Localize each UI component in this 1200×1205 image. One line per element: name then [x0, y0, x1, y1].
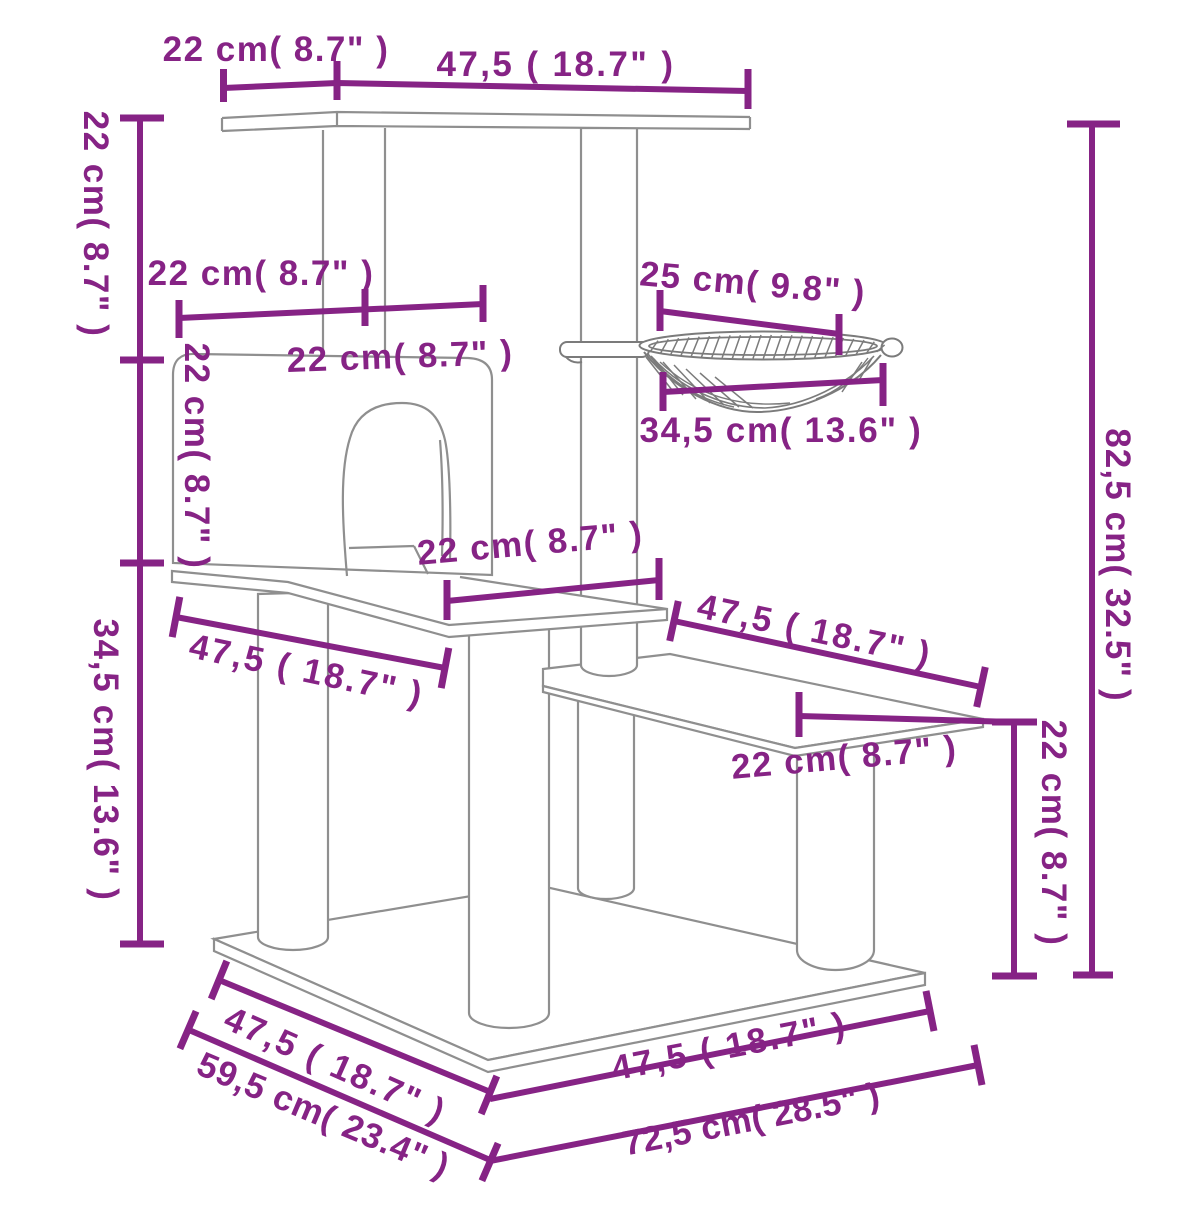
svg-text:22 cm( 8.7" ): 22 cm( 8.7" ) — [76, 111, 115, 338]
svg-text:22 cm( 8.7" ): 22 cm( 8.7" ) — [1034, 720, 1073, 947]
svg-text:22 cm( 8.7" ): 22 cm( 8.7" ) — [148, 254, 375, 293]
svg-text:22 cm( 8.7" ): 22 cm( 8.7" ) — [177, 343, 216, 570]
svg-text:82,5 cm( 32.5" ): 82,5 cm( 32.5" ) — [1098, 428, 1137, 702]
svg-text:22 cm( 8.7" ): 22 cm( 8.7" ) — [286, 333, 514, 380]
svg-text:47,5 ( 18.7" ): 47,5 ( 18.7" ) — [437, 45, 676, 84]
svg-text:34,5 cm( 13.6" ): 34,5 cm( 13.6" ) — [639, 411, 922, 450]
svg-text:34,5 cm( 13.6" ): 34,5 cm( 13.6" ) — [86, 618, 125, 901]
svg-text:22 cm( 8.7" ): 22 cm( 8.7" ) — [163, 30, 390, 69]
